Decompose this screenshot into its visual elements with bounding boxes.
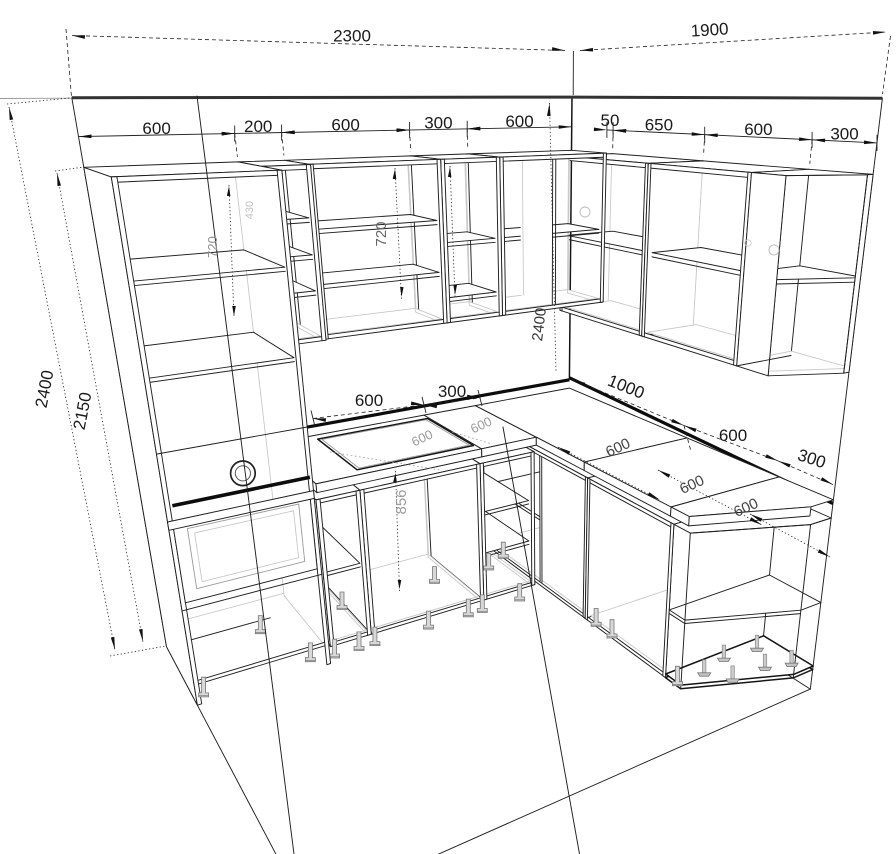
svg-text:300: 300: [424, 113, 452, 132]
svg-text:600: 600: [719, 426, 747, 445]
svg-text:1900: 1900: [690, 19, 729, 40]
svg-text:300: 300: [438, 382, 466, 401]
svg-text:600: 600: [142, 119, 170, 138]
svg-text:300: 300: [830, 124, 858, 143]
svg-text:600: 600: [355, 391, 383, 410]
svg-text:650: 650: [645, 115, 673, 134]
svg-text:50: 50: [601, 111, 620, 130]
svg-text:600: 600: [331, 115, 359, 134]
svg-text:720: 720: [205, 236, 220, 258]
svg-text:856: 856: [393, 489, 410, 514]
svg-text:720: 720: [373, 221, 390, 246]
svg-text:200: 200: [244, 117, 272, 136]
svg-text:600: 600: [744, 120, 772, 139]
svg-text:430: 430: [244, 201, 256, 219]
svg-text:2300: 2300: [333, 27, 371, 46]
svg-text:600: 600: [505, 112, 533, 131]
